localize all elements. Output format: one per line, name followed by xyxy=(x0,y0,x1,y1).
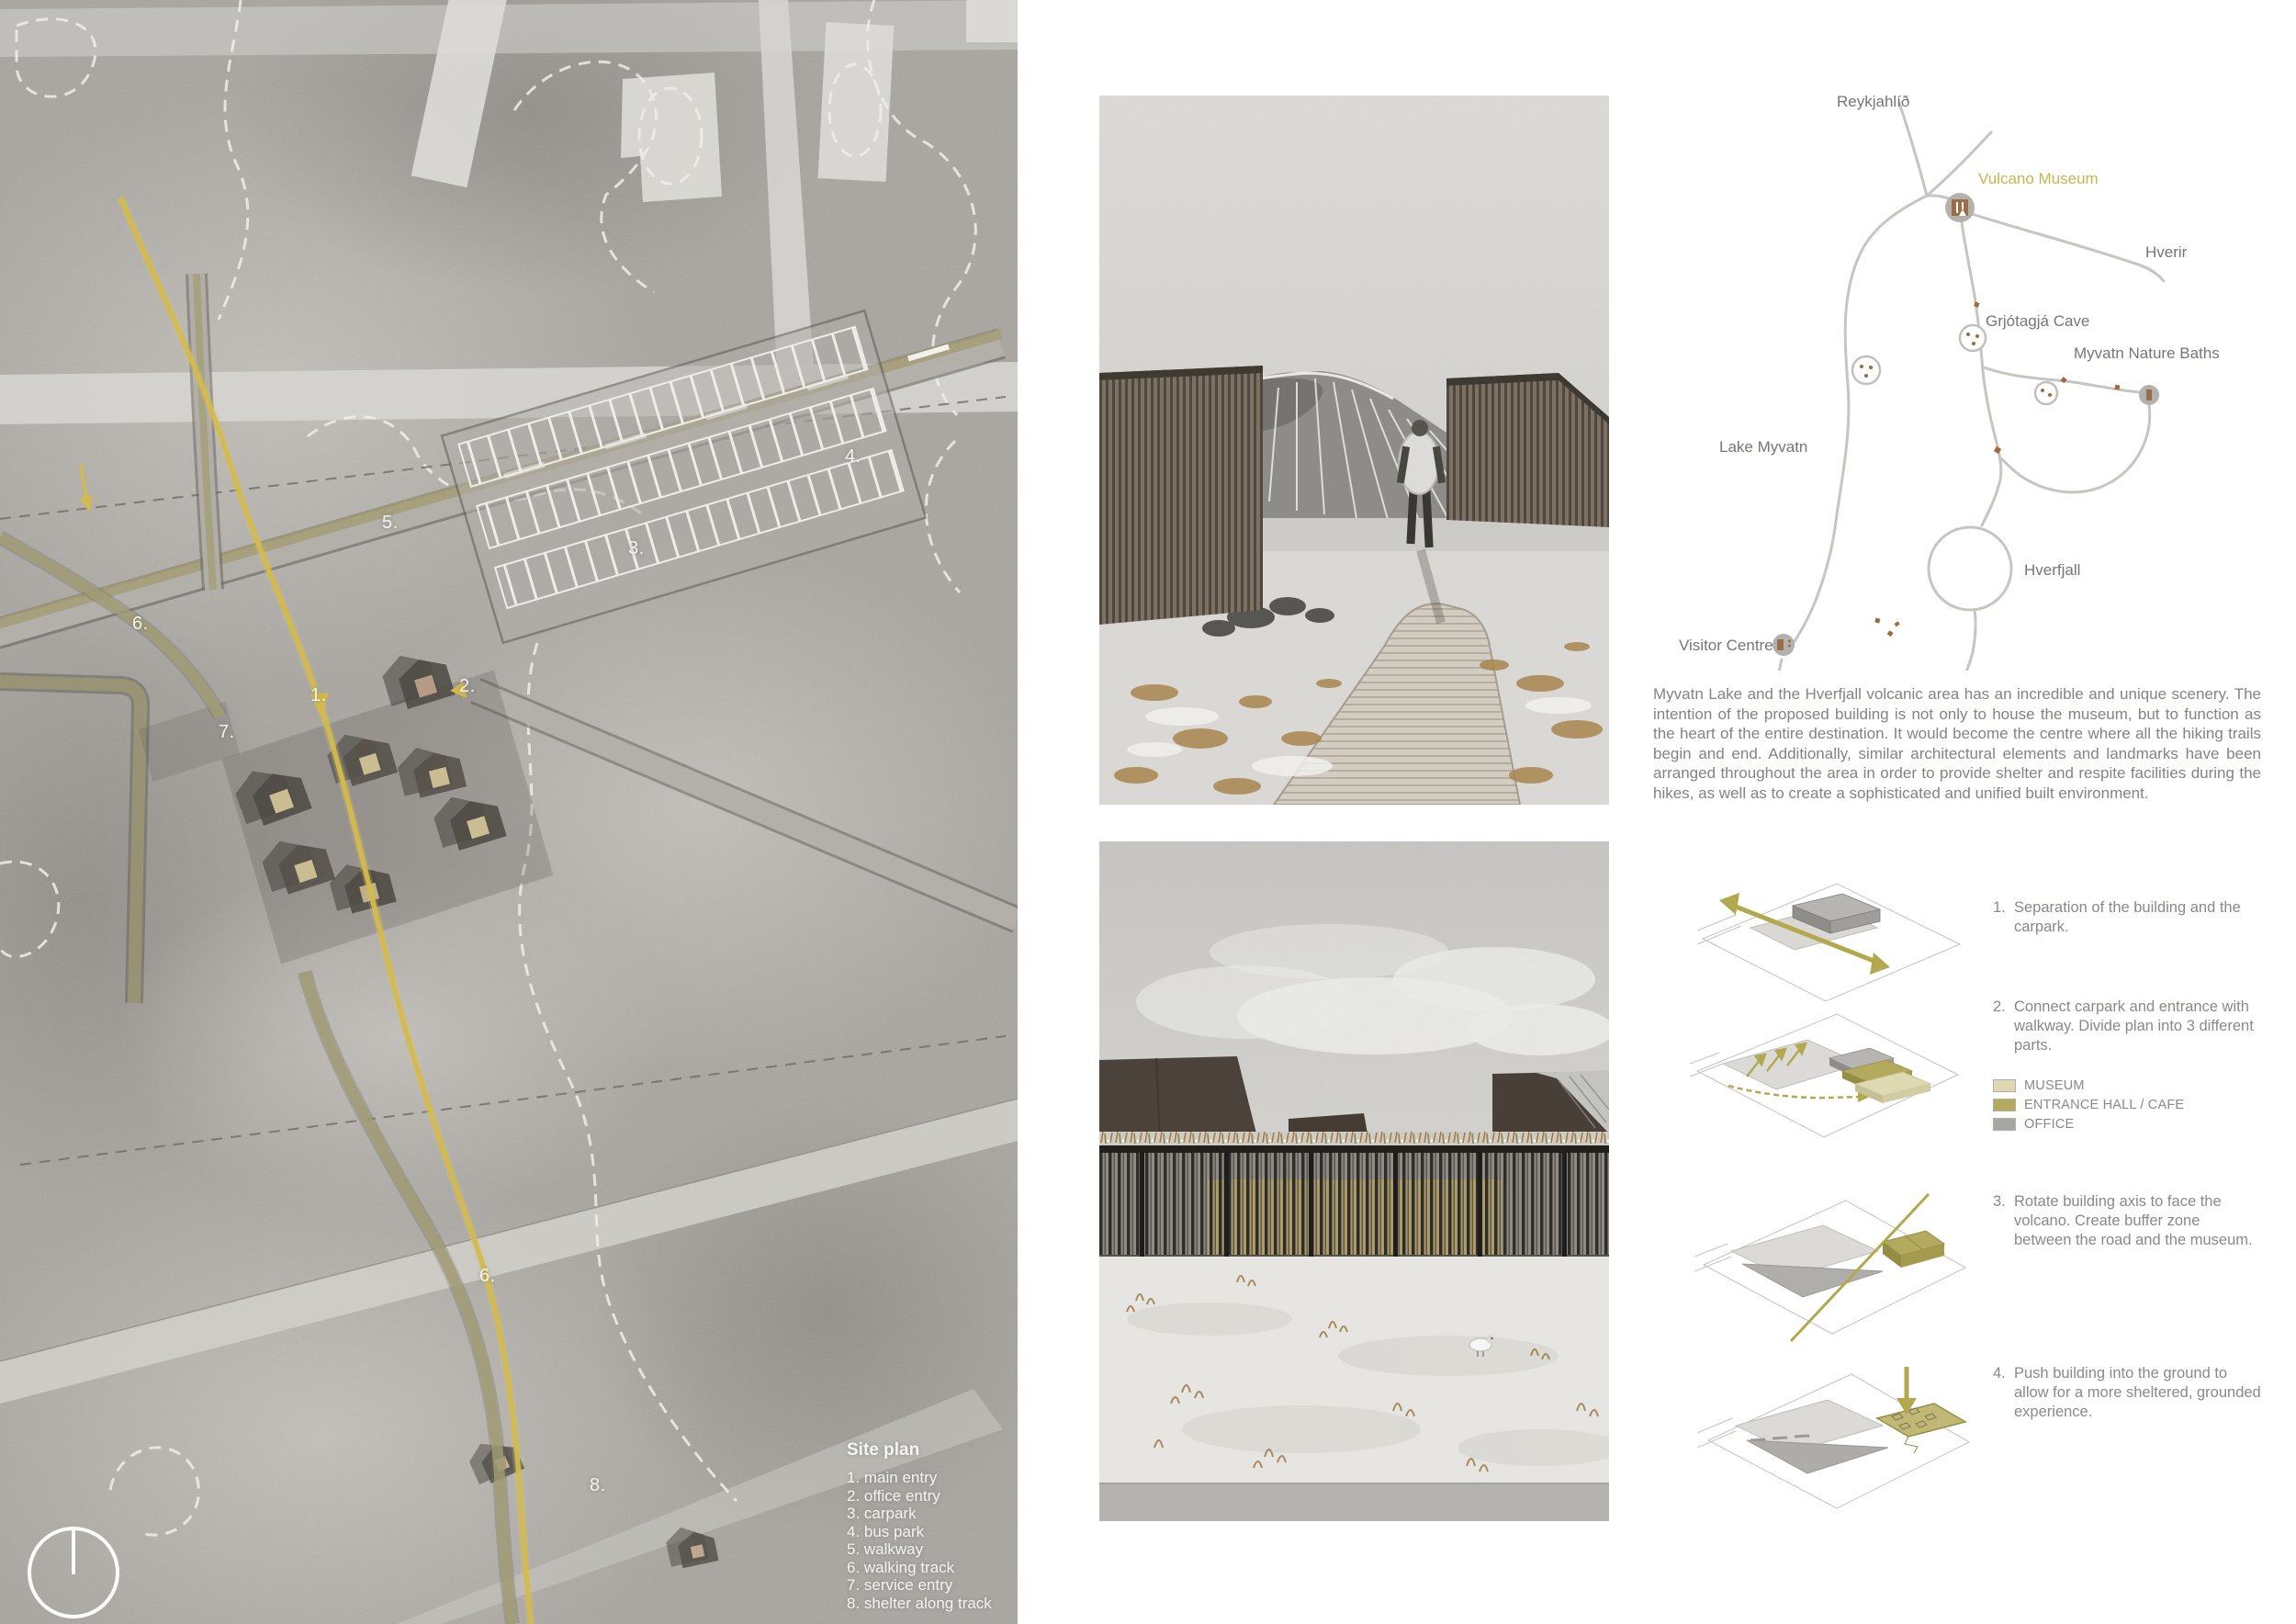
map-label-reykjahlid: Reykjahlíð xyxy=(1837,93,1909,110)
site-plan-drawing xyxy=(0,0,1018,1624)
map-label-museum: Vulcano Museum xyxy=(1978,170,2099,187)
museum-swatch xyxy=(1993,1079,2016,1092)
zoning-legend-row: OFFICE xyxy=(1993,1115,2184,1133)
map-label-baths: Myvatn Nature Baths xyxy=(2074,344,2220,362)
legend-item: 4. bus park xyxy=(847,1523,1018,1541)
legend-item: 1. main entry xyxy=(847,1469,1018,1487)
timber-pavilion-left xyxy=(1099,366,1263,625)
concept-diagram-3 xyxy=(1694,1187,1970,1357)
office-swatch xyxy=(1993,1118,2016,1131)
entrance-hall-swatch xyxy=(1993,1099,2016,1111)
site-plan-legend-title: Site plan xyxy=(847,1440,1018,1460)
step-4-text: 4.Push building into the ground to allow… xyxy=(1993,1364,2261,1422)
map-label-hverir: Hverir xyxy=(2145,243,2188,261)
legend-item: 6. walking track xyxy=(847,1559,1018,1577)
legend-item: 3. carpark xyxy=(847,1505,1018,1523)
timber-pavilion-right xyxy=(1446,373,1609,527)
concept-diagram-2 xyxy=(1690,1007,1965,1149)
legend-item: 7. service entry xyxy=(847,1576,1018,1595)
north-arrow-icon xyxy=(28,1527,119,1618)
plan-marker-6b: 6. xyxy=(479,1266,496,1287)
concept-diagram-4 xyxy=(1697,1359,1973,1529)
site-plan-legend: Site plan 1. main entry 2. office entry … xyxy=(847,1440,1018,1612)
plan-marker-1: 1. xyxy=(310,685,327,706)
render-boardwalk-photo xyxy=(1099,96,1609,805)
step-1-text: 1.Separation of the building and the car… xyxy=(1993,898,2261,937)
render-elevation-photo xyxy=(1099,841,1609,1521)
map-label-visitor-centre: Visitor Centre xyxy=(1679,637,1773,654)
plan-marker-2: 2. xyxy=(459,676,476,697)
plan-marker-5: 5. xyxy=(382,513,399,534)
museum-volume-left xyxy=(1099,1056,1257,1141)
concrete-strip xyxy=(1099,1483,1609,1521)
legend-item: 5. walkway xyxy=(847,1540,1018,1559)
concept-diagram-1 xyxy=(1697,880,1964,1009)
legend-item: 2. office entry xyxy=(847,1487,1018,1506)
step-3-text: 3.Rotate building axis to face the volca… xyxy=(1993,1192,2261,1250)
map-poi-nodes xyxy=(1773,325,2159,656)
slatted-screen-wall xyxy=(1099,1145,1609,1257)
project-description: Myvatn Lake and the Hverfjall volcanic a… xyxy=(1653,684,2261,804)
map-label-lake: Lake Myvatn xyxy=(1719,438,1807,456)
plan-marker-3: 3. xyxy=(628,538,645,559)
museum-node-icon xyxy=(1945,193,1975,222)
step-2-text: 2.Connect carpark and entrance with walk… xyxy=(1993,998,2261,1055)
presentation-board: 1. 2. 3. 4. 5. 6. 6. 7. 8. Site plan 1. … xyxy=(0,0,2296,1624)
zoning-legend-row: MUSEUM xyxy=(1993,1077,2184,1094)
map-label-hverfjall: Hverfjall xyxy=(2024,561,2080,579)
zoning-legend-row: ENTRANCE HALL / CAFE xyxy=(1993,1096,2184,1113)
plan-marker-4: 4. xyxy=(845,446,861,468)
map-roads xyxy=(1773,103,2164,671)
plan-marker-7: 7. xyxy=(219,722,235,743)
zoning-legend: MUSEUM ENTRANCE HALL / CAFE OFFICE xyxy=(1993,1077,2184,1134)
location-map: Reykjahlíð Vulcano Museum Hverir Grjótag… xyxy=(1653,64,2296,671)
plan-marker-6a: 6. xyxy=(132,614,149,635)
map-label-cave: Grjótagjá Cave xyxy=(1986,312,2089,330)
legend-item: 8. shelter along track xyxy=(847,1595,1018,1613)
plan-marker-8: 8. xyxy=(590,1475,606,1496)
site-plan-panel: 1. 2. 3. 4. 5. 6. 6. 7. 8. Site plan 1. … xyxy=(0,0,1018,1624)
